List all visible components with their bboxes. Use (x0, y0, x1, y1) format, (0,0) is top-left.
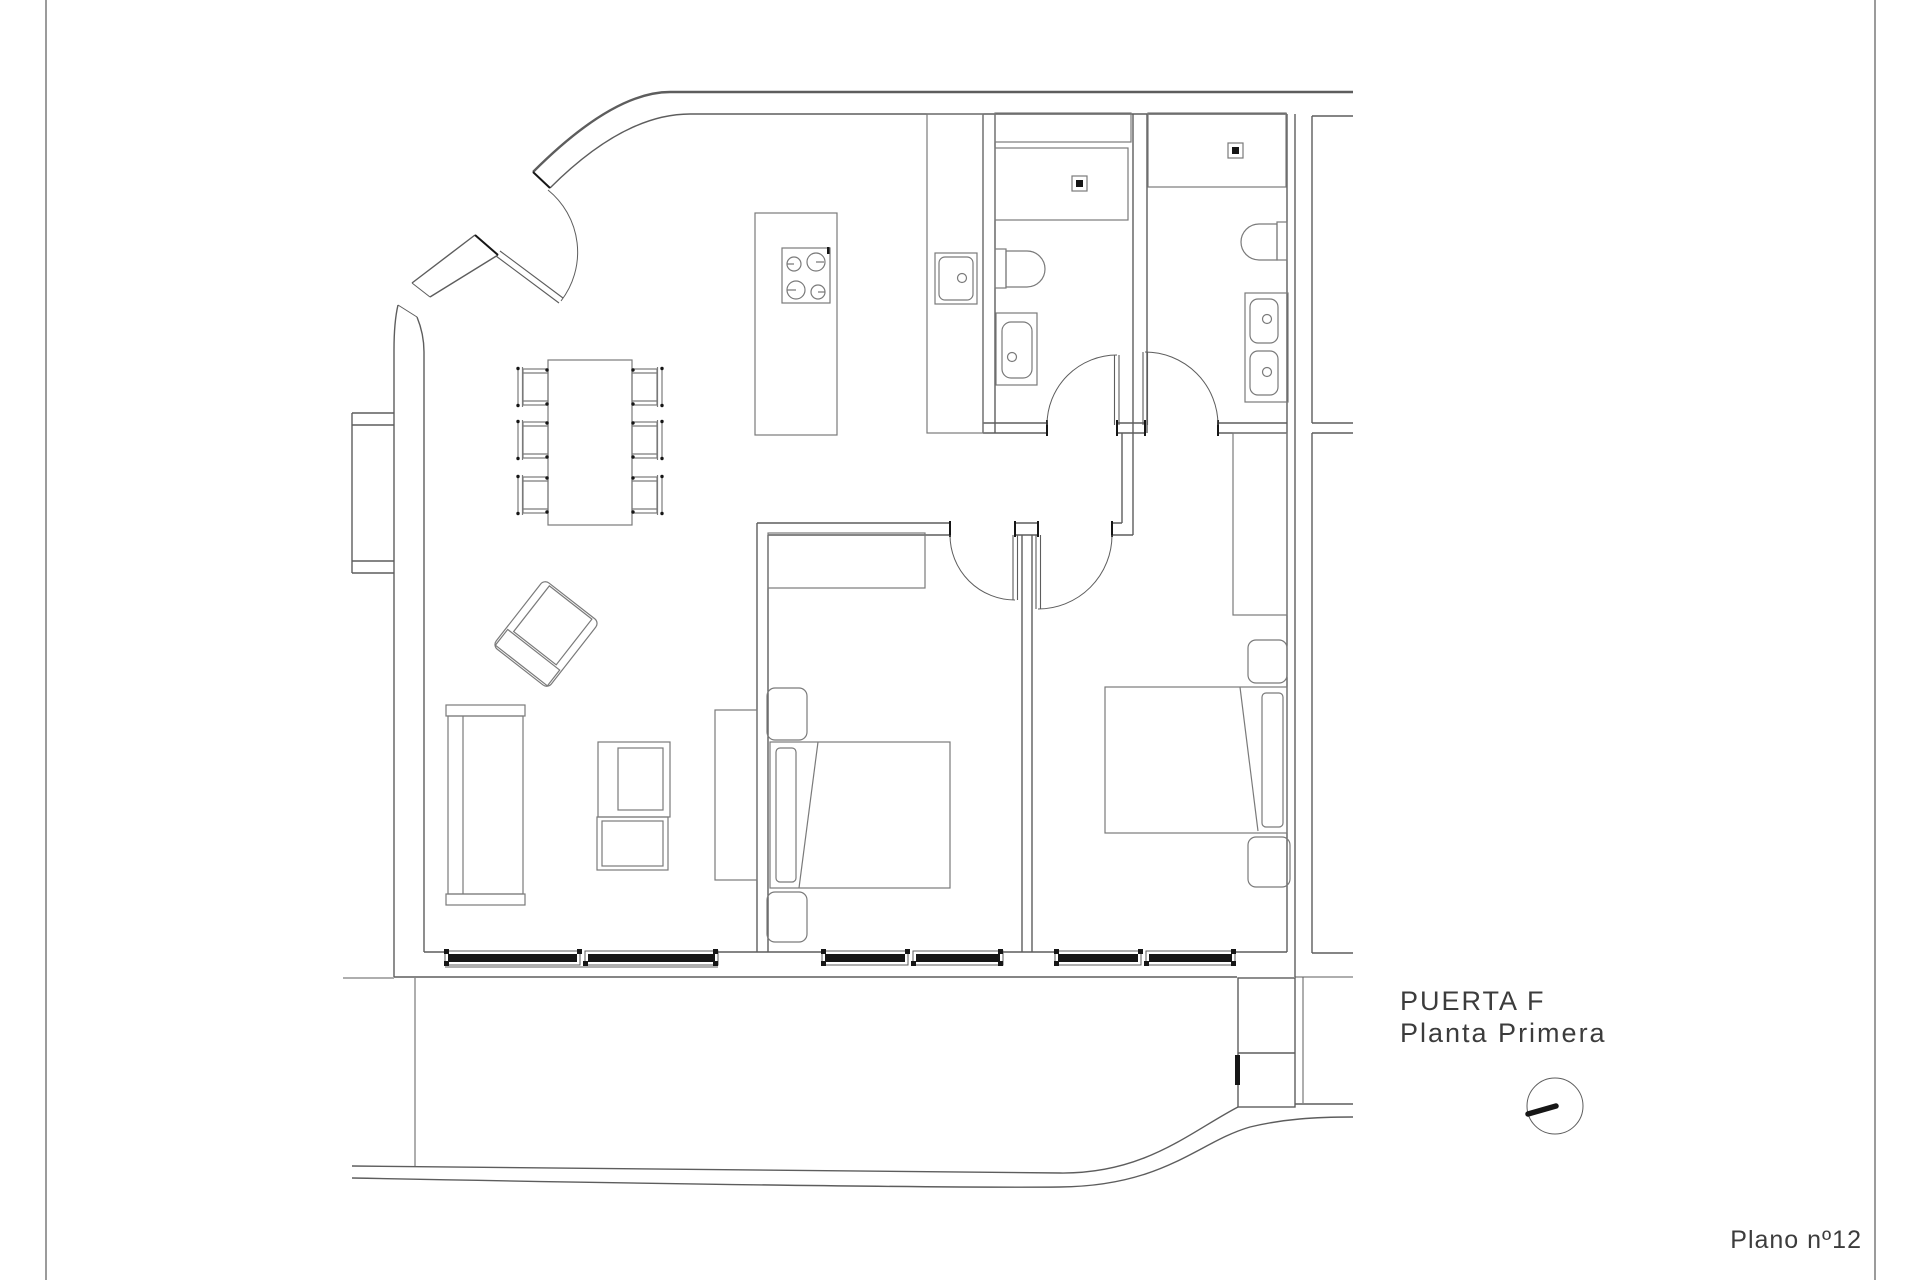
window-glass (825, 954, 905, 962)
bed-sheet-fold (799, 742, 818, 888)
window-end-cap (998, 949, 1003, 954)
window-end-cap (1144, 961, 1149, 966)
toilet (1241, 222, 1287, 260)
door-leaf (496, 251, 563, 303)
north-indicator (1527, 1078, 1583, 1134)
bath-cabinet (995, 113, 1131, 142)
window-end-cap (1231, 961, 1236, 966)
sink-basin (939, 257, 973, 300)
nightstand (1248, 837, 1290, 887)
kitchen (755, 114, 983, 435)
dining-table (548, 360, 632, 525)
dining-area (516, 360, 663, 525)
kitchen-island (755, 213, 837, 435)
north-indicator-needle (1528, 1106, 1556, 1114)
wall-cap (412, 283, 430, 297)
nightstand (767, 688, 807, 740)
wardrobe (1233, 433, 1287, 615)
window-glass (1149, 954, 1232, 962)
door-leaf (1013, 535, 1018, 600)
window-glass (1058, 954, 1138, 962)
window-end-cap (444, 949, 449, 954)
wall-top-inner (550, 114, 1287, 188)
door-jamb (475, 235, 498, 255)
bathroom-2 (1148, 113, 1288, 402)
door-jamb (533, 172, 550, 188)
basin-drain (1263, 315, 1272, 324)
sofa (446, 705, 525, 905)
bedroom1-door (950, 521, 1018, 600)
window-end-cap (1054, 949, 1059, 954)
wall-top-outer (533, 92, 1353, 172)
corner-structure (1235, 977, 1353, 1107)
side-table (597, 817, 668, 870)
basin-drain (1008, 353, 1017, 362)
wall-cap (398, 305, 417, 317)
wall-between-bedrooms (1022, 535, 1032, 952)
double-bed (770, 742, 950, 888)
shower-drain-cap (1232, 147, 1239, 154)
window-end-cap (1231, 949, 1236, 954)
street-edge-upper (352, 1104, 1353, 1173)
toilet-tank (995, 249, 1006, 288)
sink-drain (958, 274, 967, 283)
living-room (446, 579, 757, 905)
bathroom-1 (995, 113, 1131, 385)
sofa-armrest (446, 894, 525, 905)
bathroom1-door (1047, 355, 1119, 436)
dining-chair (631, 475, 663, 515)
armchair-outline (493, 579, 600, 688)
dining-chair (516, 367, 548, 407)
basin-drain (1263, 368, 1272, 377)
window-end-cap (905, 949, 910, 954)
window-end-cap (583, 961, 588, 966)
wall-left-outer (394, 305, 398, 977)
window-end-cap (713, 961, 718, 966)
armchair (493, 579, 600, 688)
window-end-cap (821, 949, 826, 954)
title-line1: PUERTA F (1400, 986, 1546, 1016)
window-glass (588, 954, 715, 962)
wall-bedroom1-left (757, 523, 768, 952)
bedroom-1 (767, 533, 950, 942)
corner-structure-door (1235, 1055, 1240, 1085)
window-glass (916, 954, 1000, 962)
sink-outline (935, 253, 977, 304)
bedroom2-door (1036, 521, 1112, 609)
dining-chair (516, 475, 548, 515)
dining-chair (631, 367, 663, 407)
bathroom2-door (1143, 352, 1218, 436)
cooktop-control (827, 247, 830, 254)
corner-structure-outline (1238, 978, 1295, 1107)
door-leaf (1036, 535, 1041, 609)
entrance-door (475, 172, 578, 303)
wardrobe (768, 533, 925, 588)
window-end-cap (444, 961, 449, 966)
door-leaf (1115, 355, 1120, 425)
coffee-table (598, 742, 670, 817)
bedroom1-window (821, 949, 1003, 966)
window-end-cap (577, 949, 582, 954)
bed-pillow (776, 748, 796, 882)
shower-tray (1148, 113, 1286, 187)
basin-bowl (1250, 351, 1278, 395)
toilet-bowl (1241, 224, 1277, 260)
floor-plan-drawing: PUERTA F Planta Primera Plano nº12 (0, 0, 1920, 1280)
window-end-cap (1054, 961, 1059, 966)
cut-strip-right (1312, 116, 1353, 953)
bed-sheet-fold (1240, 687, 1258, 831)
title-line2: Planta Primera (1400, 1018, 1607, 1048)
double-bed (1105, 687, 1287, 833)
window-end-cap (713, 949, 718, 954)
shower-drain-cap (1076, 180, 1083, 187)
dining-chair (631, 420, 663, 460)
dining-chair (516, 420, 548, 460)
basin-bowl (1002, 322, 1032, 378)
double-washbasin (1245, 293, 1288, 402)
door-swing-arc (1047, 355, 1117, 425)
window-end-cap (911, 961, 916, 966)
door-swing-arc (1145, 352, 1218, 425)
window-glass (448, 954, 577, 962)
door-swing-arc (950, 535, 1015, 600)
sofa-body (448, 716, 523, 894)
bed-outline (1105, 687, 1287, 833)
washbasin (996, 313, 1037, 385)
door-swing-arc (548, 190, 578, 301)
basin-bowl (1250, 299, 1278, 343)
kitchen-sink (935, 253, 977, 304)
wall-bathrooms-bottom (983, 423, 1287, 433)
wall-left-inner (417, 317, 424, 952)
basin-counter (1245, 293, 1288, 402)
door-swing-arc (1038, 535, 1112, 609)
nightstand (1248, 640, 1287, 683)
window-end-cap (998, 961, 1003, 966)
toilet-bowl (1006, 251, 1045, 287)
bed-pillow (1262, 693, 1283, 827)
window-end-cap (1138, 949, 1143, 954)
cooktop (782, 247, 830, 303)
exterior-site (343, 977, 1353, 1187)
armchair-back (495, 629, 559, 685)
living-room-window (444, 949, 718, 967)
armchair-seat (514, 586, 592, 665)
toilet-tank (1277, 222, 1287, 260)
tv-unit (715, 710, 757, 880)
nightstand (767, 892, 807, 942)
shower (1148, 113, 1286, 187)
shower-tray (995, 148, 1128, 220)
bedroom2-window (1054, 949, 1236, 966)
drawing-sheet: PUERTA F Planta Primera Plano nº12 (0, 0, 1920, 1280)
title-block: PUERTA F Planta Primera (1400, 986, 1607, 1048)
side-table-top (602, 821, 663, 866)
toilet (995, 249, 1045, 288)
windows (444, 949, 1236, 967)
sofa-armrest (446, 705, 525, 716)
coffee-table-top (618, 748, 663, 810)
neighbour-wall-stub (352, 413, 394, 573)
coffee-tables (597, 742, 670, 870)
window-end-cap (821, 961, 826, 966)
bed-outline (770, 742, 950, 888)
plan-number: Plano nº12 (1730, 1226, 1862, 1254)
shower (995, 148, 1128, 220)
wall-corridor-stub (1122, 433, 1133, 535)
burner-marks (787, 262, 825, 292)
